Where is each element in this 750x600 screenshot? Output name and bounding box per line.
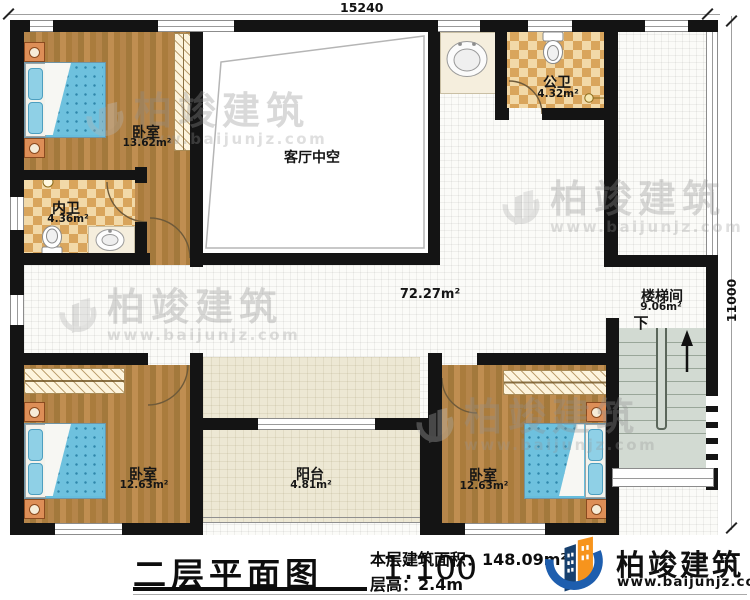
floor-balcony — [203, 357, 420, 523]
window — [645, 20, 688, 32]
window — [528, 20, 572, 32]
floorplan-page: 柏竣建筑 www.baijunjz.com 柏竣建筑 www.baijunjz.… — [0, 0, 750, 600]
wall — [495, 108, 509, 120]
window — [30, 20, 53, 32]
dimension-right: 11000 — [724, 272, 739, 329]
wall — [190, 353, 203, 535]
wall — [190, 253, 440, 265]
wall — [604, 20, 618, 267]
room-label-void: 客厅中空 — [284, 147, 340, 167]
balcony-railing — [203, 517, 420, 523]
floor-height-label: 层高： — [370, 575, 418, 594]
wall — [428, 20, 440, 265]
window — [706, 460, 718, 468]
wall — [10, 353, 148, 365]
room-area-bedroom-bottomright: 12.63m² — [460, 480, 509, 492]
window — [158, 20, 234, 32]
dimension-top: 15240 — [340, 0, 384, 15]
floor-livingroom-void — [203, 32, 428, 253]
company-website: www.baijunjz.com — [617, 574, 750, 590]
nightstand — [24, 499, 45, 519]
nightstand — [24, 138, 45, 158]
window — [438, 20, 480, 32]
wall — [10, 20, 24, 535]
nightstand — [586, 402, 607, 422]
window — [465, 523, 545, 535]
wardrobe — [24, 368, 125, 394]
room-area-balcony: 4.81m² — [290, 479, 331, 491]
wall — [10, 253, 150, 265]
wall — [606, 318, 619, 535]
sink-counter-inner-bath — [88, 226, 135, 255]
company-logo-icon — [538, 534, 610, 596]
bed — [24, 423, 106, 499]
floor-height-line: 层高：2.4m — [370, 571, 463, 595]
wall — [706, 255, 718, 490]
room-area-inner-bath: 4.36m² — [47, 213, 88, 225]
nightstand — [24, 402, 45, 422]
window — [706, 444, 718, 454]
room-area-bedroom-bottomleft: 12.63m² — [120, 479, 169, 491]
wall — [203, 418, 258, 430]
stairs — [619, 328, 706, 470]
nightstand — [586, 499, 607, 519]
wall — [24, 170, 143, 180]
floor-area-label: 本层建筑面积： — [370, 550, 482, 569]
window — [706, 412, 718, 422]
stair-down-label: 下 — [633, 312, 648, 333]
wall — [375, 418, 420, 430]
bed — [24, 62, 106, 138]
stair-window-sill — [612, 468, 714, 487]
wall — [495, 20, 507, 120]
wall — [542, 108, 606, 120]
wall — [606, 255, 718, 267]
floor-height-value: 2.4m — [418, 575, 463, 594]
room-area-hall: 72.27m² — [400, 287, 460, 302]
stair-divider — [656, 328, 667, 430]
room-area-bedroom-topleft: 13.62m² — [123, 137, 172, 149]
window — [10, 197, 24, 230]
wardrobe — [503, 370, 608, 395]
wall — [190, 20, 203, 267]
window — [55, 523, 122, 535]
window — [706, 32, 718, 255]
window — [10, 295, 24, 325]
sink-counter-hall — [440, 32, 497, 94]
wall — [135, 167, 147, 183]
balcony-door-window — [258, 418, 375, 430]
wall — [135, 222, 147, 265]
wall — [420, 418, 442, 535]
wall — [477, 353, 606, 365]
nightstand — [24, 42, 45, 62]
window — [706, 396, 718, 406]
bed — [524, 423, 607, 499]
title-underline — [133, 587, 367, 591]
room-area-public-bath: 4.32m² — [537, 88, 578, 100]
window — [706, 428, 718, 438]
